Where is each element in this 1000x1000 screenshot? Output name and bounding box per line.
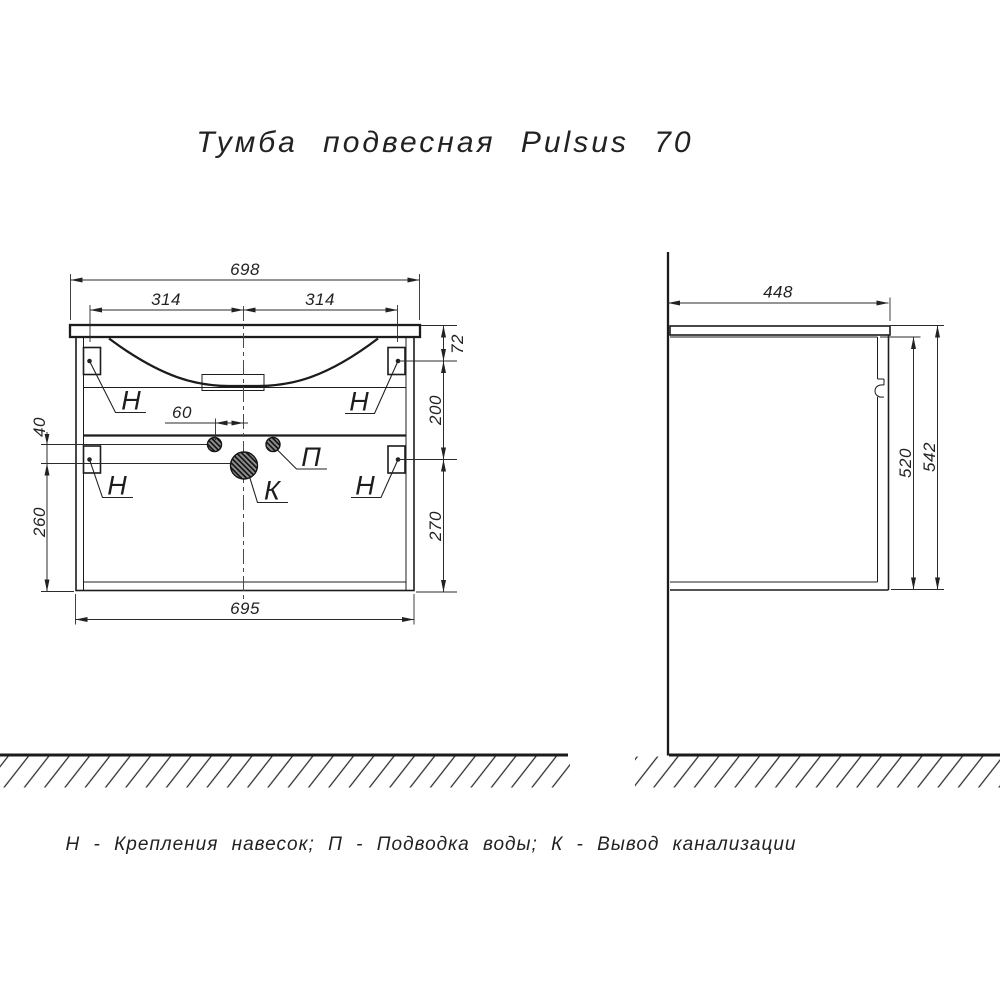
dim-left-half: 314 xyxy=(90,290,244,342)
svg-text:200: 200 xyxy=(426,395,445,426)
svg-text:314: 314 xyxy=(151,290,181,309)
label-bracket-mid-left: Н xyxy=(90,460,134,501)
dim-top-width: 698 xyxy=(71,260,420,320)
legend: Н - Крепления навесок; П - Подводка воды… xyxy=(0,834,862,856)
dim-right-chain: 72 200 270 xyxy=(399,326,467,593)
dim-body-width: 695 xyxy=(76,594,415,625)
dim-depth: 448 xyxy=(668,283,890,322)
label-bracket-top-right: Н xyxy=(345,361,398,417)
bracket-top-left xyxy=(84,348,101,375)
side-countertop xyxy=(670,326,890,335)
side-handle-groove xyxy=(875,337,884,582)
svg-text:К: К xyxy=(264,476,282,506)
svg-text:270: 270 xyxy=(426,511,445,542)
front-countertop xyxy=(70,325,420,337)
dim-left-chain: 40 260 xyxy=(30,417,230,591)
drawing-page: Тумба подвесная Pulsus 70 xyxy=(0,0,1000,1000)
dim-front-height: 520 xyxy=(880,337,921,590)
svg-text:698: 698 xyxy=(230,260,260,279)
svg-text:314: 314 xyxy=(305,290,335,309)
bracket-mid-left xyxy=(84,446,101,473)
sink-drain-box xyxy=(202,375,264,391)
svg-text:Н: Н xyxy=(349,387,369,417)
drain-outlet-hole xyxy=(231,452,258,479)
label-drain-outlet: К xyxy=(249,475,288,506)
front-view: 698 314 314 695 xyxy=(30,260,467,625)
svg-text:Н: Н xyxy=(121,386,141,416)
label-water-supply: П xyxy=(278,442,328,472)
svg-text:60: 60 xyxy=(172,403,192,422)
svg-text:П: П xyxy=(301,442,321,472)
water-supply-hole-right xyxy=(266,438,280,452)
svg-text:448: 448 xyxy=(763,283,793,302)
side-view: 448 520 542 xyxy=(668,252,944,756)
svg-text:40: 40 xyxy=(30,417,49,437)
svg-text:542: 542 xyxy=(920,442,939,472)
ground xyxy=(0,755,1000,788)
svg-text:520: 520 xyxy=(896,448,915,478)
label-bracket-mid-right: Н xyxy=(351,460,398,501)
label-bracket-top-left: Н xyxy=(90,361,147,416)
svg-text:260: 260 xyxy=(30,507,49,538)
svg-text:Н: Н xyxy=(355,471,375,501)
ground-hatch-right xyxy=(635,757,1000,788)
water-supply-hole-left xyxy=(208,438,222,452)
dim-right-half: 314 xyxy=(244,290,398,342)
svg-text:Н: Н xyxy=(107,471,127,501)
svg-text:695: 695 xyxy=(230,599,260,618)
ground-hatch-left xyxy=(0,757,570,788)
svg-text:72: 72 xyxy=(448,334,467,354)
